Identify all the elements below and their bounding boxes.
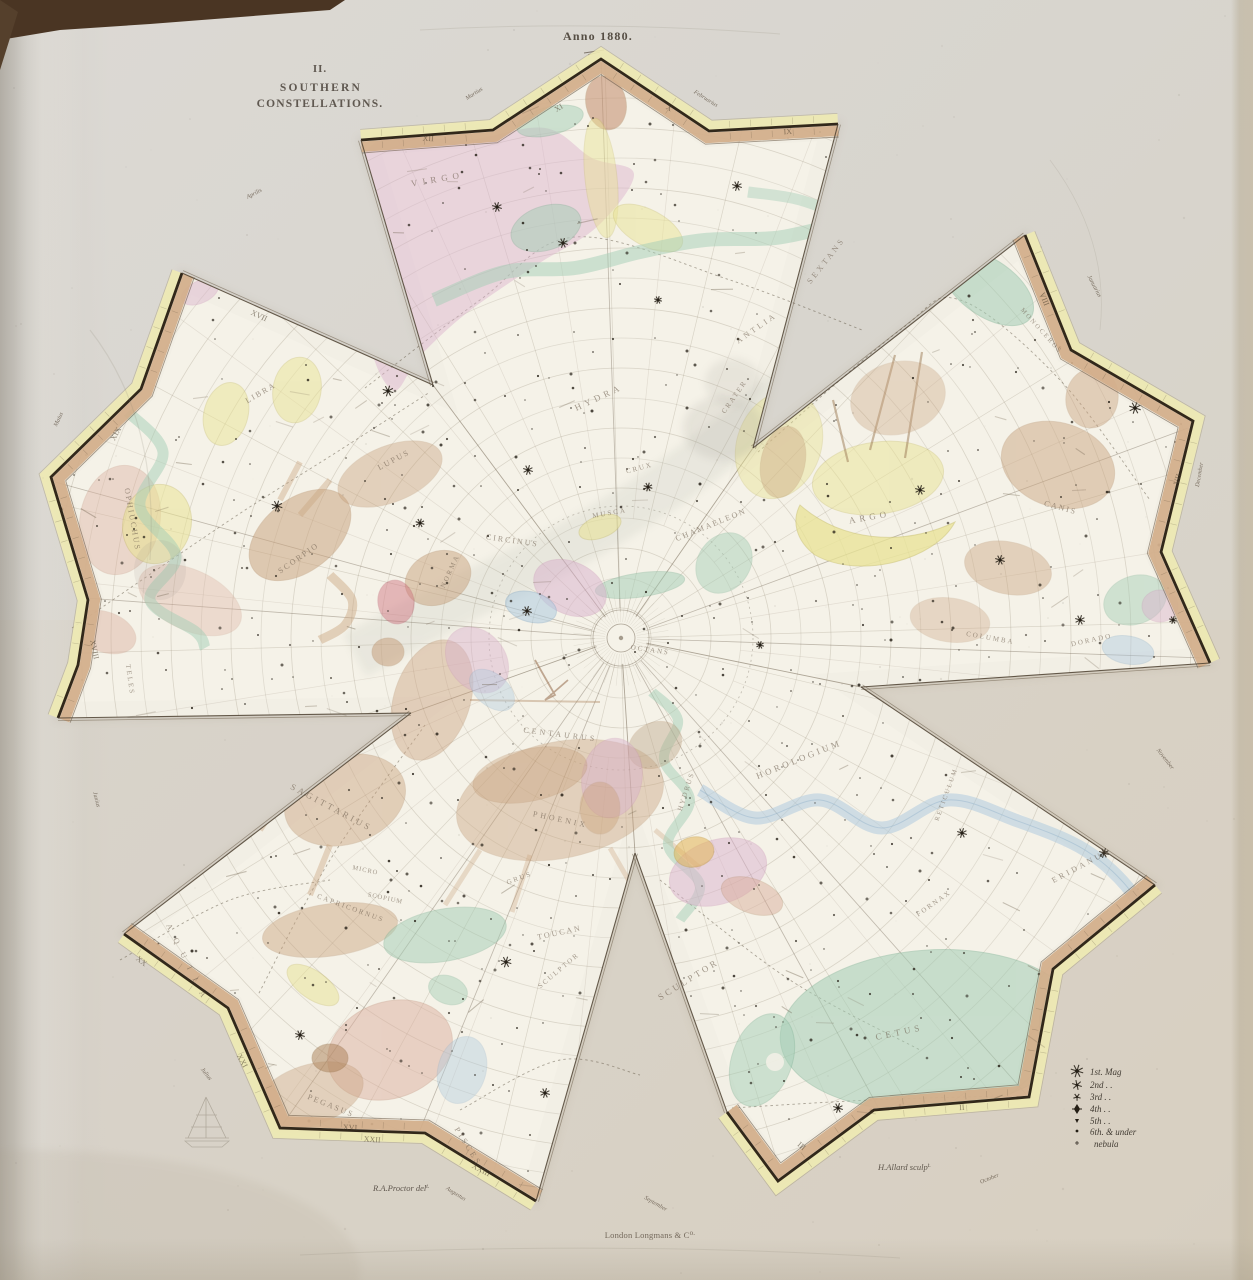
svg-text:Anno 1880.: Anno 1880. [563,29,633,43]
svg-text:6th. & under: 6th. & under [1090,1127,1137,1137]
svg-text:2nd . .: 2nd . . [1090,1080,1113,1090]
svg-text:3rd . .: 3rd . . [1089,1092,1111,1102]
svg-text:1st. Mag: 1st. Mag [1090,1067,1122,1077]
svg-text:XII: XII [422,134,434,144]
svg-text:IX: IX [783,127,792,137]
svg-text:nebula: nebula [1094,1139,1119,1149]
svg-text:5th . .: 5th . . [1090,1116,1111,1126]
svg-text:H.Allard sculpt.: H.Allard sculpt. [877,1162,931,1172]
svg-text:4th . .: 4th . . [1090,1104,1111,1114]
svg-text:SOUTHERN: SOUTHERN [280,82,362,94]
svg-text:XXII: XXII [363,1134,381,1144]
svg-text:II: II [959,1103,965,1112]
svg-text:XVI: XVI [343,1123,358,1133]
svg-text:R.A.Proctor delt.: R.A.Proctor delt. [372,1183,429,1193]
svg-text:London Longmans & Co.: London Longmans & Co. [605,1229,695,1240]
svg-text:CONSTELLATIONS.: CONSTELLATIONS. [257,98,384,110]
svg-text:II.: II. [313,63,327,75]
